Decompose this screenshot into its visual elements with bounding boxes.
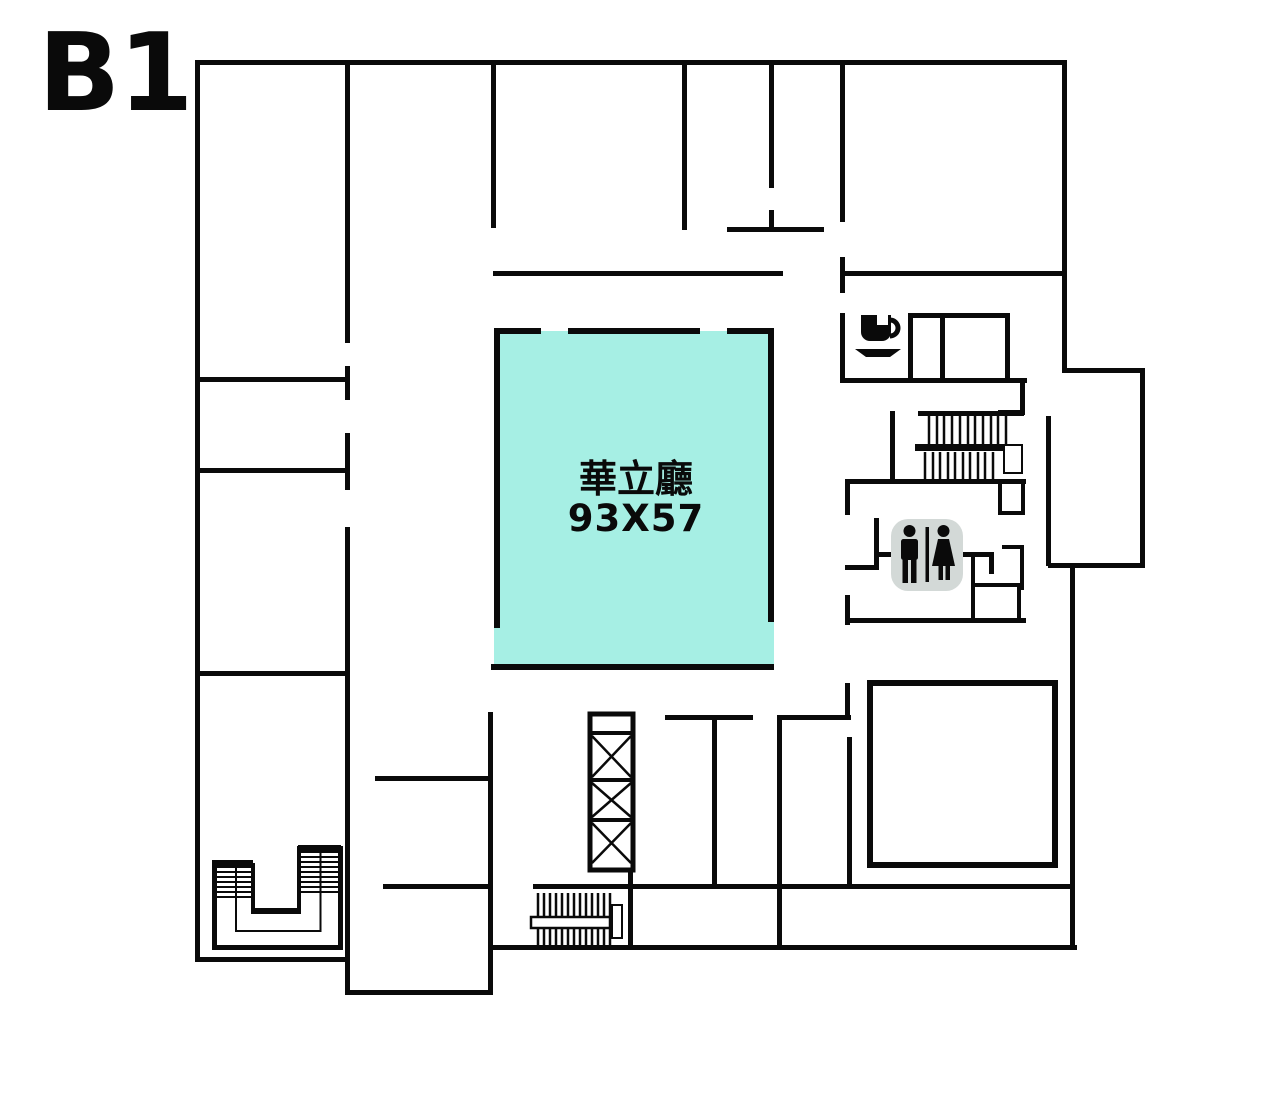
floor-plan-page: B1 華立廳 93X57	[0, 0, 1266, 1094]
stairs-rail-bar	[531, 917, 610, 928]
hall-name-label: 華立廳	[579, 457, 693, 501]
floor-label: B1	[38, 11, 191, 136]
man-icon-torso	[901, 539, 918, 560]
man-icon-leg	[911, 558, 917, 583]
restroom-divider	[926, 527, 930, 582]
stairs-treads-left-flight	[214, 867, 251, 897]
coffee-cup-notch	[877, 315, 888, 325]
restroom-icon	[891, 519, 963, 591]
man-icon-leg	[903, 558, 909, 583]
man-icon-head	[904, 525, 916, 537]
hall-dimensions-label: 93X57	[568, 497, 705, 540]
woman-icon-leg	[939, 566, 944, 580]
stairs-treads-right-flight	[301, 852, 338, 892]
woman-icon-head	[938, 525, 950, 537]
floor-plan: B1 華立廳 93X57	[0, 0, 1266, 1094]
elevator-shaft	[590, 714, 633, 870]
elevator-outline	[590, 714, 633, 870]
woman-icon-leg	[946, 566, 951, 580]
